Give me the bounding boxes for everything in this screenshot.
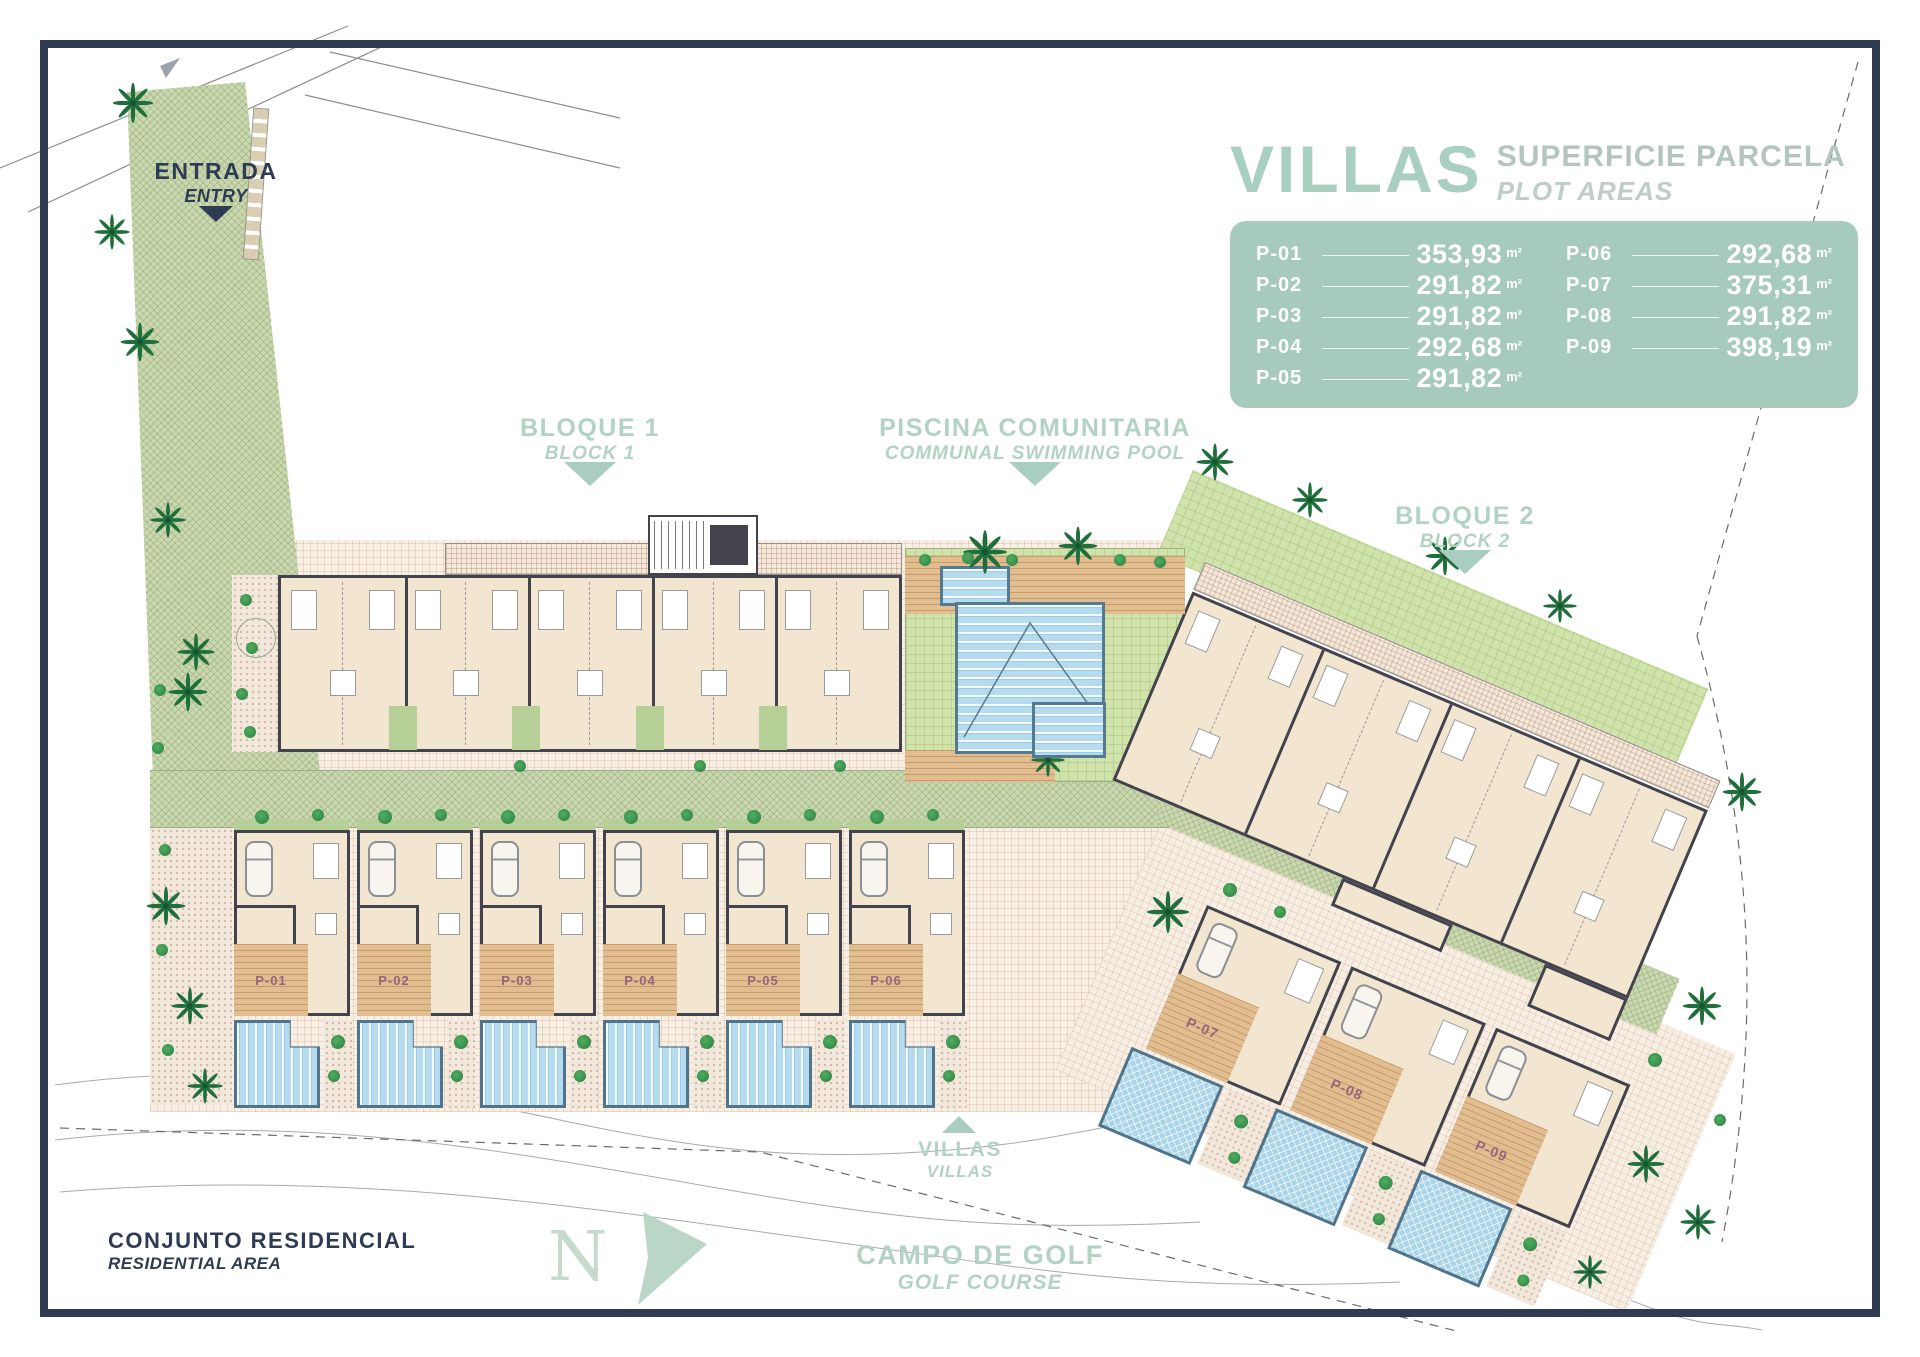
block2-bed — [1523, 754, 1559, 797]
residential-label-en: RESIDENTIAL AREA — [108, 1254, 428, 1274]
block2-bed — [1185, 610, 1221, 653]
legend-plot-id: P-04 — [1256, 336, 1314, 359]
legend-title: VILLAS — [1230, 140, 1483, 199]
block1-stair-core — [648, 515, 758, 575]
legend-subtitle: SUPERFICIE PARCELA PLOT AREAS — [1497, 140, 1846, 207]
legend-panel: P-01353,93m²P-02291,82m²P-03291,82m²P-04… — [1230, 221, 1858, 408]
legend-leader-line — [1322, 347, 1409, 349]
legend-plot-id: P-09 — [1566, 336, 1624, 359]
block2-bed — [1267, 646, 1303, 689]
residential-label: CONJUNTO RESIDENCIAL RESIDENTIAL AREA — [108, 1228, 428, 1275]
paving-strip-west — [150, 828, 232, 1105]
block2-bed — [1395, 700, 1431, 743]
north-letter: N — [548, 1224, 608, 1292]
block2-table — [1445, 836, 1476, 867]
block1-patio-green — [512, 706, 540, 750]
legend-plot-area: 375,31 — [1727, 270, 1813, 301]
block2-bed — [1312, 665, 1348, 708]
north-compass: N — [548, 1208, 710, 1308]
block1-bed — [616, 590, 642, 630]
car-icon — [1338, 982, 1385, 1043]
block1-party-wall — [465, 582, 466, 745]
block1-bed — [369, 590, 395, 630]
legend-subtitle-es: SUPERFICIE PARCELA — [1497, 140, 1846, 174]
pool-label-es: PISCINA COMUNITARIA — [845, 414, 1225, 443]
villa-bed — [1284, 958, 1325, 1004]
block1-party-wall — [713, 582, 714, 745]
legend-area-unit: m² — [1506, 332, 1522, 353]
legend-leader-line — [1322, 378, 1409, 380]
paving-zone-villas — [150, 828, 1185, 1112]
entrance-label-en: ENTRY — [126, 186, 306, 208]
legend-row: P-01353,93m² — [1256, 239, 1522, 270]
block1-table — [824, 670, 850, 696]
block2-party-wall — [1564, 789, 1640, 965]
pool-label: PISCINA COMUNITARIA COMMUNAL SWIMMING PO… — [845, 414, 1225, 465]
legend-area-unit: m² — [1506, 270, 1522, 291]
block1-label: BLOQUE 1 BLOCK 1 — [490, 414, 690, 465]
block2-party-wall — [1436, 734, 1512, 910]
block1-bed — [492, 590, 518, 630]
legend-leader-line — [1322, 285, 1409, 287]
block2-party-wall — [1180, 626, 1256, 802]
block1-bed — [291, 590, 317, 630]
legend-plot-area: 398,19 — [1727, 332, 1813, 363]
legend-leader-line — [1632, 316, 1719, 318]
golf-label-es: CAMPO DE GOLF — [790, 1240, 1170, 1271]
legend-area-unit: m² — [1506, 301, 1522, 322]
legend-plot-area: 292,68 — [1417, 332, 1503, 363]
legend-area-unit: m² — [1506, 363, 1522, 384]
legend-column-2: P-06292,68m²P-07375,31m²P-08291,82m²P-09… — [1566, 239, 1832, 394]
jacuzzi-pool — [1032, 702, 1106, 758]
legend-column-1: P-01353,93m²P-02291,82m²P-03291,82m²P-04… — [1256, 239, 1522, 394]
block2-label-es: BLOQUE 2 — [1365, 502, 1565, 531]
car-icon — [1483, 1043, 1530, 1104]
golf-label: CAMPO DE GOLF GOLF COURSE — [790, 1240, 1170, 1295]
legend-plot-id: P-03 — [1256, 305, 1314, 328]
legend-leader-line — [1632, 254, 1719, 256]
block1-bed — [785, 590, 811, 630]
kids-pool — [940, 566, 1010, 606]
pool-arrow-icon — [1009, 462, 1061, 486]
entrance-label-es: ENTRADA — [126, 158, 306, 186]
access-road-lines — [0, 0, 620, 330]
legend-leader-line — [1632, 347, 1719, 349]
block2-table — [1189, 728, 1220, 759]
legend-leader-line — [1632, 285, 1719, 287]
legend-plot-id: P-01 — [1256, 243, 1314, 266]
block1-bed — [739, 590, 765, 630]
legend: VILLAS SUPERFICIE PARCELA PLOT AREAS P-0… — [1230, 140, 1858, 408]
block2-bed — [1568, 773, 1604, 816]
legend-area-unit: m² — [1816, 239, 1832, 260]
block1-table — [577, 670, 603, 696]
courtyard-tree — [236, 618, 276, 658]
legend-row: P-05291,82m² — [1256, 363, 1522, 394]
legend-plot-id: P-07 — [1566, 274, 1624, 297]
block1-bed — [863, 590, 889, 630]
villas-label-en: VILLAS — [870, 1162, 1050, 1182]
legend-subtitle-en: PLOT AREAS — [1497, 176, 1846, 207]
legend-plot-area: 291,82 — [1417, 301, 1503, 332]
villa-bed — [1428, 1019, 1469, 1065]
legend-area-unit: m² — [1816, 270, 1832, 291]
legend-leader-line — [1322, 254, 1409, 256]
villas-label-es: VILLAS — [870, 1138, 1050, 1162]
block2-table — [1573, 891, 1604, 922]
entrance-label: ENTRADA ENTRY — [126, 158, 306, 207]
legend-header: VILLAS SUPERFICIE PARCELA PLOT AREAS — [1230, 140, 1858, 207]
block1-table — [330, 670, 356, 696]
block1-arrow-icon — [564, 462, 616, 486]
villas-label: VILLAS VILLAS — [870, 1138, 1050, 1182]
villa-plot-label: P-08 — [1329, 1075, 1366, 1103]
legend-area-unit: m² — [1816, 332, 1832, 353]
legend-plot-area: 291,82 — [1727, 301, 1813, 332]
legend-row: P-06292,68m² — [1566, 239, 1832, 270]
road-arrow-icon — [160, 58, 180, 78]
block1-bed — [662, 590, 688, 630]
legend-plot-area: 291,82 — [1417, 270, 1503, 301]
block1-building — [278, 575, 902, 752]
legend-plot-id: P-06 — [1566, 243, 1624, 266]
block1-label-es: BLOQUE 1 — [490, 414, 690, 443]
block1-table — [453, 670, 479, 696]
legend-plot-area: 291,82 — [1417, 363, 1503, 394]
legend-area-unit: m² — [1816, 301, 1832, 322]
block2-table — [1317, 782, 1348, 813]
legend-plot-area: 353,93 — [1417, 239, 1503, 270]
legend-leader-line — [1322, 316, 1409, 318]
block1-patio-green — [759, 706, 787, 750]
villa-plot-label: P-07 — [1184, 1014, 1221, 1042]
villas-arrow-icon — [942, 1116, 976, 1133]
block1-bed — [415, 590, 441, 630]
residential-label-es: CONJUNTO RESIDENCIAL — [108, 1228, 428, 1254]
block2-party-wall — [1308, 680, 1384, 856]
entrance-arrow-icon — [199, 206, 233, 222]
legend-row: P-02291,82m² — [1256, 270, 1522, 301]
legend-plot-id: P-08 — [1566, 305, 1624, 328]
north-arrow-icon — [610, 1208, 710, 1308]
legend-row: P-07375,31m² — [1566, 270, 1832, 301]
block2-bed — [1440, 719, 1476, 762]
villa-plot-label: P-09 — [1473, 1137, 1510, 1165]
block2-arrow-icon — [1439, 550, 1491, 574]
courtyard-block1 — [232, 575, 278, 752]
legend-row: P-03291,82m² — [1256, 301, 1522, 332]
block1-table — [701, 670, 727, 696]
legend-row: P-09398,19m² — [1566, 332, 1832, 363]
legend-plot-area: 292,68 — [1727, 239, 1813, 270]
block1-patio-green — [636, 706, 664, 750]
block1-patio-green — [389, 706, 417, 750]
block1-party-wall — [342, 582, 343, 745]
legend-row: P-08291,82m² — [1566, 301, 1832, 332]
block2-label: BLOQUE 2 BLOCK 2 — [1365, 502, 1565, 553]
block1-party-wall — [589, 582, 590, 745]
legend-plot-id: P-02 — [1256, 274, 1314, 297]
car-icon — [1194, 920, 1241, 981]
legend-row: P-04292,68m² — [1256, 332, 1522, 363]
legend-plot-id: P-05 — [1256, 367, 1314, 390]
block1-party-wall — [836, 582, 837, 745]
villa-bed — [1573, 1081, 1614, 1127]
legend-area-unit: m² — [1506, 239, 1522, 260]
site-plan-canvas: P-01P-02P-03P-04P-05P-06 P-07P-08P-09 EN… — [0, 0, 1920, 1357]
block1-bed — [538, 590, 564, 630]
golf-label-en: GOLF COURSE — [790, 1271, 1170, 1295]
block2-bed — [1651, 808, 1687, 851]
